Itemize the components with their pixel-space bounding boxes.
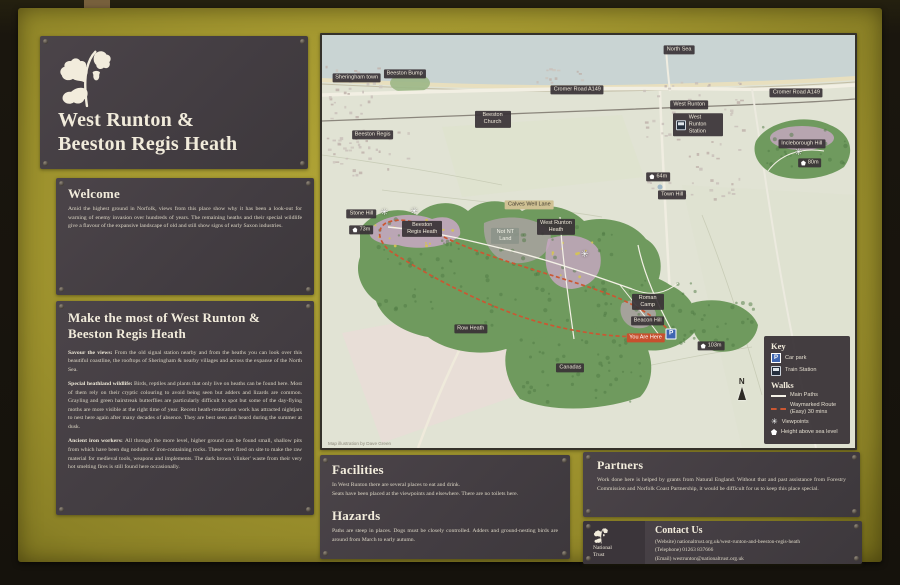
welcome-panel: Welcome Amid the highest ground in Norfo…: [56, 178, 314, 295]
map-label: Cromer Road A149: [551, 85, 604, 94]
map-label: Beeston Regis Heath: [402, 221, 442, 237]
make-the-most-heading: Make the most of West Runton & Beeston R…: [68, 310, 274, 343]
partners-body: Work done here is helped by grants from …: [597, 476, 846, 493]
screw: [306, 304, 311, 309]
screw: [854, 556, 859, 561]
contact-line: (Website) nationaltrust.org.uk/west-runt…: [655, 538, 852, 546]
screw: [59, 304, 64, 309]
national-trust-logo-block: National Trust: [583, 521, 645, 564]
screw: [306, 507, 311, 512]
map-label: West Runton Heath: [537, 219, 575, 235]
facilities-body: In West Runton there are several places …: [332, 481, 558, 498]
screw: [586, 524, 591, 529]
key-item-label: Height above sea level: [781, 429, 838, 436]
key-items: PCar parkTrain Station: [771, 353, 843, 376]
hazards-body: Paths are steep in places. Dogs must be …: [332, 527, 558, 544]
screw: [59, 181, 64, 186]
sign-title-line2: Beeston Regis Heath: [58, 133, 237, 155]
national-trust-oak-logo-small-icon: [593, 527, 609, 544]
screw: [306, 287, 311, 292]
walk-items: Main PathsWaymarked Route (Easy) 30 mins…: [771, 392, 843, 435]
map-label: Beeston Bump: [384, 69, 426, 78]
facilities-hazards-panel: Facilities In West Runton there are seve…: [320, 455, 570, 559]
map-label: Stone Hill: [347, 210, 377, 219]
screw: [562, 551, 567, 556]
sign-title-line1: West Runton &: [58, 109, 194, 131]
key-heading: Key: [771, 341, 843, 351]
key-item-label: Waymarked Route (Easy) 30 mins: [790, 402, 843, 416]
train-station-icon: [771, 366, 781, 376]
key-item: ✳Viewpoints: [771, 418, 843, 426]
contact-panel: National Trust Contact Us (Website) nati…: [583, 521, 862, 564]
path-icon: [771, 395, 786, 397]
screw: [300, 39, 305, 44]
map-label: Roman Camp: [632, 294, 664, 310]
map-label: Beeston Church: [475, 111, 511, 127]
contact-lines: (Website) nationaltrust.org.uk/west-runt…: [655, 538, 852, 563]
viewpoint-icon: ✳: [795, 147, 803, 159]
route-icon: [771, 408, 786, 410]
map-label: Row Heath: [454, 324, 487, 333]
viewpoint-icon: ✳: [410, 206, 418, 218]
key-item-label: Viewpoints: [782, 419, 809, 426]
key-item: PCar park: [771, 353, 843, 363]
compass-north-icon: N: [738, 378, 746, 400]
screw: [323, 551, 328, 556]
height-marker: 73m: [350, 225, 374, 234]
height-icon: [771, 429, 777, 435]
map-label: North Sea: [664, 45, 695, 54]
height-marker: 64m: [646, 172, 670, 181]
map-panel: North SeaBeeston BumpSheringham townBees…: [320, 33, 857, 450]
screw: [43, 39, 48, 44]
info-paragraph: Ancient iron workers: All through the mo…: [68, 437, 302, 471]
walks-heading: Walks: [771, 380, 843, 390]
map-label: Beeston Regis: [352, 130, 394, 139]
key-item: Waymarked Route (Easy) 30 mins: [771, 402, 843, 416]
screw: [323, 458, 328, 463]
screw: [59, 287, 64, 292]
screw: [43, 161, 48, 166]
info-paragraph: Special heathland wildlife: Birds, repti…: [68, 380, 302, 431]
height-marker: 103m: [698, 341, 725, 350]
map-label: Not NT Land: [491, 228, 519, 244]
train-station-label: West Runton Station: [673, 113, 723, 136]
map-label: Sheringham town: [332, 73, 381, 82]
key-item: Main Paths: [771, 392, 843, 399]
screw: [586, 556, 591, 561]
partners-heading: Partners: [597, 458, 846, 473]
map-label: You Are Here: [626, 334, 665, 343]
partners-panel: Partners Work done here is helped by gra…: [583, 452, 860, 517]
map: North SeaBeeston BumpSheringham townBees…: [322, 35, 855, 448]
contact-line: (Telephone) 01263 837666: [655, 546, 852, 554]
key-item-label: Car park: [785, 355, 806, 362]
welcome-heading: Welcome: [68, 186, 302, 202]
sign-title: West Runton & Beeston Regis Heath: [58, 108, 237, 156]
facilities-heading: Facilities: [332, 462, 558, 478]
photo-of-information-board: West Runton & Beeston Regis Heath Welcom…: [0, 0, 900, 585]
screw: [562, 458, 567, 463]
height-marker: 80m: [798, 158, 822, 167]
screw: [852, 455, 857, 460]
screw: [300, 161, 305, 166]
contact-line: (Email) westrunton@nationaltrust.org.uk: [655, 555, 852, 563]
make-the-most-panel: Make the most of West Runton & Beeston R…: [56, 301, 314, 515]
map-label: Beacon Hill: [631, 316, 665, 325]
national-trust-oak-logo-icon: [58, 46, 114, 113]
map-credit: Map illustration by Dave Green: [328, 441, 391, 446]
key-item-label: Main Paths: [790, 392, 818, 399]
screw: [852, 509, 857, 514]
screw: [306, 181, 311, 186]
carpark-icon: P: [771, 353, 781, 363]
viewpoint-icon: ✳: [581, 249, 589, 261]
map-label: West Runton: [670, 101, 708, 110]
make-paragraphs: Savour the views: From the old signal st…: [68, 349, 302, 472]
car-park-icon: P: [666, 329, 677, 340]
screw: [586, 509, 591, 514]
map-label: Cromer Road A149: [770, 89, 823, 98]
map-label: Calves Well Lane: [505, 201, 554, 210]
title-panel: West Runton & Beeston Regis Heath: [40, 36, 308, 169]
map-key: Key PCar parkTrain Station Walks Main Pa…: [764, 336, 850, 444]
key-item: Train Station: [771, 366, 843, 376]
map-label: Canadas: [556, 363, 584, 372]
view-icon: ✳: [771, 418, 778, 426]
screw: [586, 455, 591, 460]
screw: [59, 507, 64, 512]
screw: [854, 524, 859, 529]
key-item-label: Train Station: [785, 367, 817, 374]
org-name: National Trust: [593, 545, 619, 558]
compass-letter: N: [739, 377, 745, 386]
hazards-heading: Hazards: [332, 508, 558, 524]
map-label: Town Hill: [658, 191, 686, 200]
welcome-body: Amid the highest ground in Norfolk, view…: [68, 205, 302, 231]
key-item: Height above sea level: [771, 429, 843, 436]
info-paragraph: Savour the views: From the old signal st…: [68, 349, 302, 375]
contact-heading: Contact Us: [655, 525, 852, 536]
viewpoint-icon: ✳: [381, 208, 389, 220]
